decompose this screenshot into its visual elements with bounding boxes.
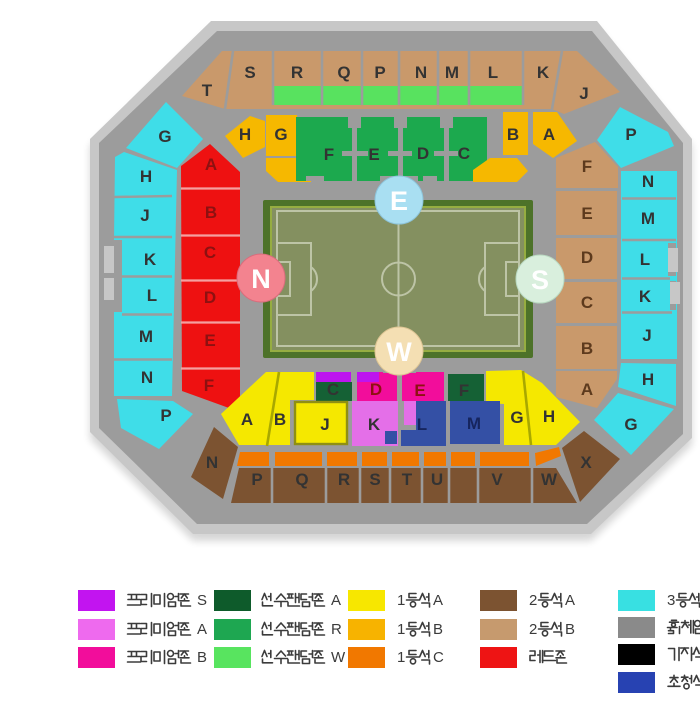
svg-text:J: J (579, 84, 588, 103)
svg-text:H: H (543, 407, 555, 426)
svg-text:P: P (160, 406, 171, 425)
svg-text:F: F (582, 157, 592, 176)
svg-text:K: K (144, 250, 157, 269)
svg-text:M: M (445, 63, 459, 82)
svg-text:D: D (204, 288, 216, 307)
svg-text:P: P (251, 470, 262, 489)
svg-text:F: F (459, 381, 469, 400)
svg-text:N: N (415, 63, 427, 82)
svg-text:A: A (543, 125, 555, 144)
svg-text:G: G (624, 415, 637, 434)
svg-text:M: M (139, 327, 153, 346)
svg-text:C: C (581, 293, 593, 312)
svg-text:3: 3 (667, 592, 675, 609)
svg-text:A: A (241, 410, 253, 429)
svg-text:B: B (197, 649, 207, 666)
svg-text:M: M (467, 414, 481, 433)
svg-text:B: B (433, 621, 443, 638)
svg-text:G: G (510, 408, 523, 427)
svg-text:D: D (581, 248, 593, 267)
svg-text:Q: Q (337, 63, 350, 82)
svg-text:B: B (581, 339, 593, 358)
svg-text:2: 2 (529, 592, 537, 609)
svg-text:L: L (640, 250, 650, 269)
svg-text:1: 1 (397, 649, 405, 666)
svg-text:A: A (331, 592, 341, 609)
svg-text:V: V (491, 470, 503, 489)
svg-text:G: G (158, 127, 171, 146)
svg-text:W: W (386, 337, 412, 367)
svg-text:C: C (433, 649, 444, 666)
svg-text:R: R (331, 621, 342, 638)
svg-text:E: E (414, 381, 425, 400)
svg-text:E: E (368, 145, 379, 164)
svg-text:M: M (641, 209, 655, 228)
svg-text:A: A (433, 592, 443, 609)
svg-text:N: N (206, 453, 218, 472)
svg-text:R: R (291, 63, 303, 82)
svg-text:E: E (204, 331, 215, 350)
svg-text:B: B (274, 410, 286, 429)
svg-text:H: H (642, 370, 654, 389)
svg-text:D: D (417, 144, 429, 163)
svg-text:A: A (565, 592, 575, 609)
svg-text:F: F (324, 145, 334, 164)
svg-text:H: H (239, 125, 251, 144)
svg-text:U: U (431, 470, 443, 489)
svg-text:F: F (204, 376, 214, 395)
svg-text:2: 2 (529, 621, 537, 638)
svg-text:C: C (327, 380, 339, 399)
svg-text:J: J (320, 415, 329, 434)
svg-text:L: L (417, 415, 427, 434)
svg-text:K: K (368, 415, 381, 434)
svg-text:S: S (369, 470, 380, 489)
svg-text:P: P (625, 125, 636, 144)
svg-text:C: C (204, 243, 216, 262)
svg-text:J: J (140, 206, 149, 225)
svg-text:C: C (458, 144, 470, 163)
svg-text:B: B (565, 621, 575, 638)
svg-text:A: A (197, 621, 207, 638)
svg-text:S: S (244, 63, 255, 82)
svg-text:P: P (374, 63, 385, 82)
svg-text:B: B (507, 125, 519, 144)
svg-text:H: H (140, 167, 152, 186)
svg-text:L: L (147, 286, 157, 305)
svg-text:Q: Q (295, 470, 308, 489)
svg-text:A: A (205, 155, 217, 174)
svg-text:T: T (402, 470, 413, 489)
svg-text:K: K (639, 287, 652, 306)
svg-text:A: A (581, 380, 593, 399)
svg-text:E: E (581, 204, 592, 223)
svg-text:S: S (531, 265, 549, 295)
svg-text:W: W (331, 649, 346, 666)
svg-text:1: 1 (397, 592, 405, 609)
svg-text:T: T (202, 81, 213, 100)
svg-text:R: R (338, 470, 350, 489)
svg-text:W: W (541, 470, 558, 489)
svg-text:S: S (197, 592, 207, 609)
svg-text:L: L (488, 63, 498, 82)
svg-text:N: N (141, 368, 153, 387)
svg-text:N: N (642, 172, 654, 191)
svg-text:B: B (205, 203, 217, 222)
svg-text:1: 1 (397, 621, 405, 638)
svg-text:X: X (580, 453, 592, 472)
svg-text:D: D (370, 380, 382, 399)
svg-text:J: J (642, 326, 651, 345)
svg-text:E: E (390, 186, 408, 216)
svg-text:K: K (537, 63, 550, 82)
svg-text:G: G (274, 125, 287, 144)
svg-text:N: N (251, 264, 271, 294)
